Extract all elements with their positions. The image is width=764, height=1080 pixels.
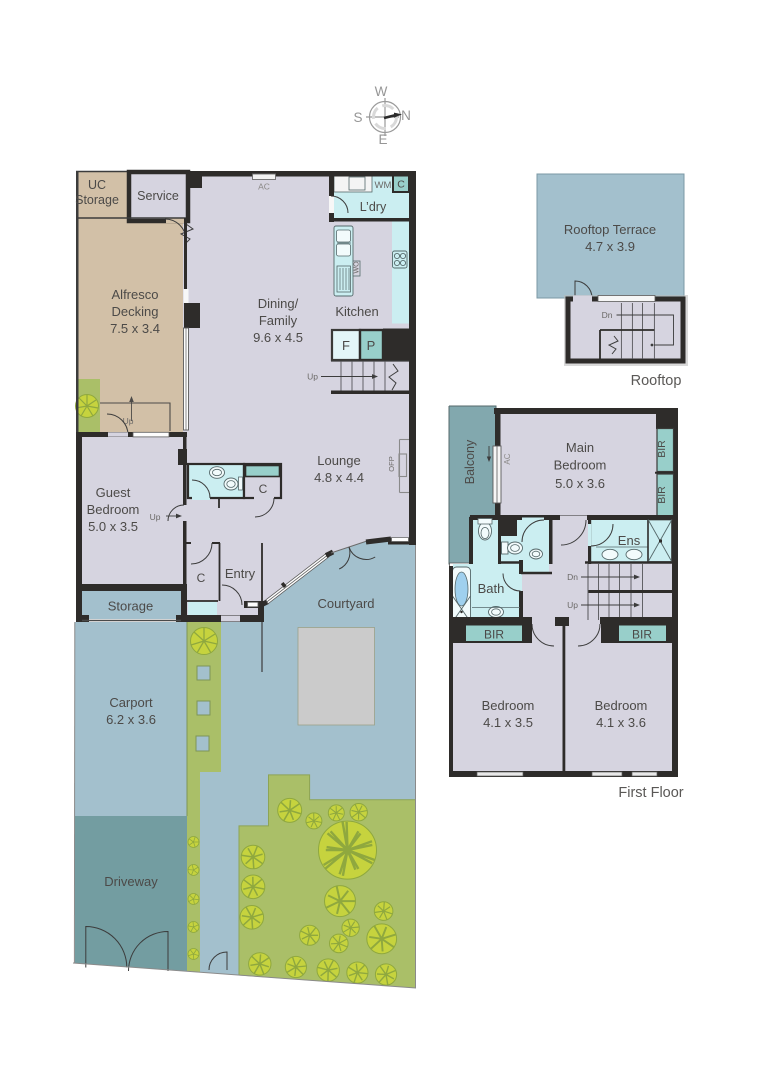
svg-text:AC: AC [503, 453, 512, 464]
svg-text:Courtyard: Courtyard [317, 596, 374, 611]
svg-text:6.2 x 3.6: 6.2 x 3.6 [106, 712, 156, 727]
svg-text:4.7 x 3.9: 4.7 x 3.9 [585, 239, 635, 254]
svg-text:P: P [367, 338, 376, 353]
svg-text:Up: Up [150, 512, 161, 522]
svg-text:Main: Main [566, 440, 594, 455]
svg-text:Driveway: Driveway [104, 874, 158, 889]
svg-text:Bedroom: Bedroom [595, 698, 648, 713]
svg-text:Family: Family [259, 313, 298, 328]
svg-text:Lounge: Lounge [317, 453, 360, 468]
svg-text:AC: AC [258, 182, 270, 192]
svg-text:4.1 x 3.6: 4.1 x 3.6 [596, 715, 646, 730]
svg-text:4.1 x 3.5: 4.1 x 3.5 [483, 715, 533, 730]
svg-text:C: C [259, 482, 268, 496]
svg-text:Kitchen: Kitchen [335, 304, 378, 319]
svg-text:Bedroom: Bedroom [554, 458, 607, 473]
svg-text:Ens: Ens [618, 533, 641, 548]
svg-text:9.6 x 4.5: 9.6 x 4.5 [253, 330, 303, 345]
svg-text:C: C [197, 571, 206, 585]
svg-text:Bedroom: Bedroom [482, 698, 535, 713]
svg-text:Carport: Carport [109, 695, 153, 710]
svg-text:BIR: BIR [656, 486, 668, 504]
svg-text:Decking: Decking [112, 304, 159, 319]
svg-text:4.8 x 4.4: 4.8 x 4.4 [314, 470, 364, 485]
svg-text:Bath: Bath [478, 581, 505, 596]
svg-text:Service: Service [137, 189, 179, 203]
svg-text:L’dry: L’dry [360, 200, 387, 214]
svg-text:F: F [342, 338, 350, 353]
svg-text:Rooftop: Rooftop [631, 373, 682, 389]
svg-text:Storage: Storage [108, 599, 154, 614]
svg-text:Dn: Dn [567, 572, 578, 582]
svg-text:Rooftop Terrace: Rooftop Terrace [564, 222, 656, 237]
svg-text:5.0 x 3.5: 5.0 x 3.5 [88, 519, 138, 534]
svg-text:Dining/: Dining/ [258, 296, 299, 311]
svg-text:Dn: Dn [602, 310, 613, 320]
svg-text:BIR: BIR [484, 628, 504, 642]
svg-text:OFP: OFP [387, 456, 396, 471]
svg-text:UC: UC [88, 178, 106, 192]
svg-text:Storage: Storage [75, 193, 119, 207]
svg-text:Alfresco: Alfresco [112, 287, 159, 302]
svg-text:Entry: Entry [225, 566, 256, 581]
svg-text:WO: WO [354, 261, 361, 274]
svg-text:WM: WM [375, 180, 392, 191]
svg-text:Bedroom: Bedroom [87, 502, 140, 517]
svg-text:Up: Up [123, 416, 134, 426]
svg-text:BIR: BIR [632, 628, 652, 642]
svg-text:N: N [401, 108, 411, 123]
svg-text:W: W [375, 84, 388, 99]
svg-text:Up: Up [567, 600, 578, 610]
svg-text:C: C [397, 179, 405, 191]
svg-text:First Floor: First Floor [618, 785, 683, 801]
svg-text:Balcony: Balcony [463, 439, 477, 484]
svg-text:Up: Up [307, 372, 318, 382]
svg-text:7.5 x 3.4: 7.5 x 3.4 [110, 321, 160, 336]
svg-text:S: S [353, 110, 362, 125]
svg-text:5.0 x 3.6: 5.0 x 3.6 [555, 476, 605, 491]
svg-text:E: E [378, 132, 387, 147]
svg-text:BIR: BIR [656, 440, 668, 458]
svg-text:Guest: Guest [96, 485, 131, 500]
